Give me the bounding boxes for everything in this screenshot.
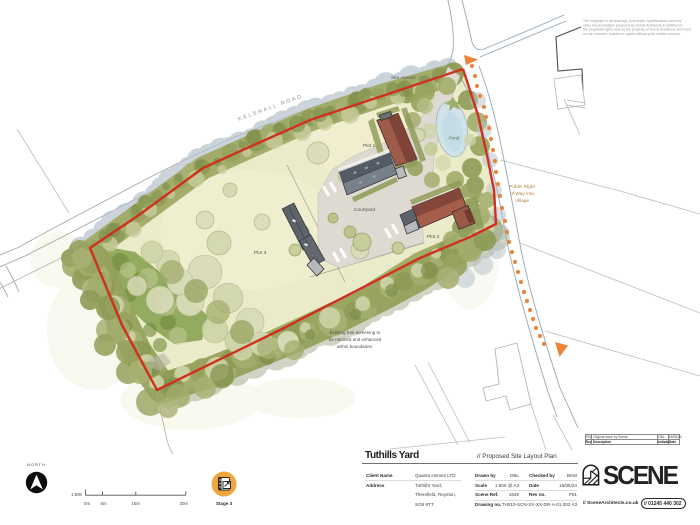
svg-text:Plot 1: Plot 1	[363, 143, 376, 149]
svg-text:not be removed, loaned or copi: not be removed, loaned or copied without…	[583, 32, 681, 36]
svg-text:Site Access: Site Access	[391, 75, 416, 81]
svg-text:Plot 3: Plot 3	[254, 250, 267, 256]
svg-text:of Way into: of Way into	[510, 191, 534, 197]
svg-text:within boundaries.: within boundaries.	[337, 344, 373, 349]
svg-text:be retained and enhanced: be retained and enhanced	[329, 337, 382, 342]
svg-text:Existing tree screening to: Existing tree screening to	[330, 330, 381, 335]
svg-text:Pond: Pond	[449, 136, 460, 141]
svg-text:Courtyard: Courtyard	[354, 207, 375, 213]
svg-text:Plot 2: Plot 2	[427, 234, 440, 240]
svg-text:Public Right: Public Right	[509, 184, 535, 190]
svg-text:Village: Village	[515, 198, 530, 204]
